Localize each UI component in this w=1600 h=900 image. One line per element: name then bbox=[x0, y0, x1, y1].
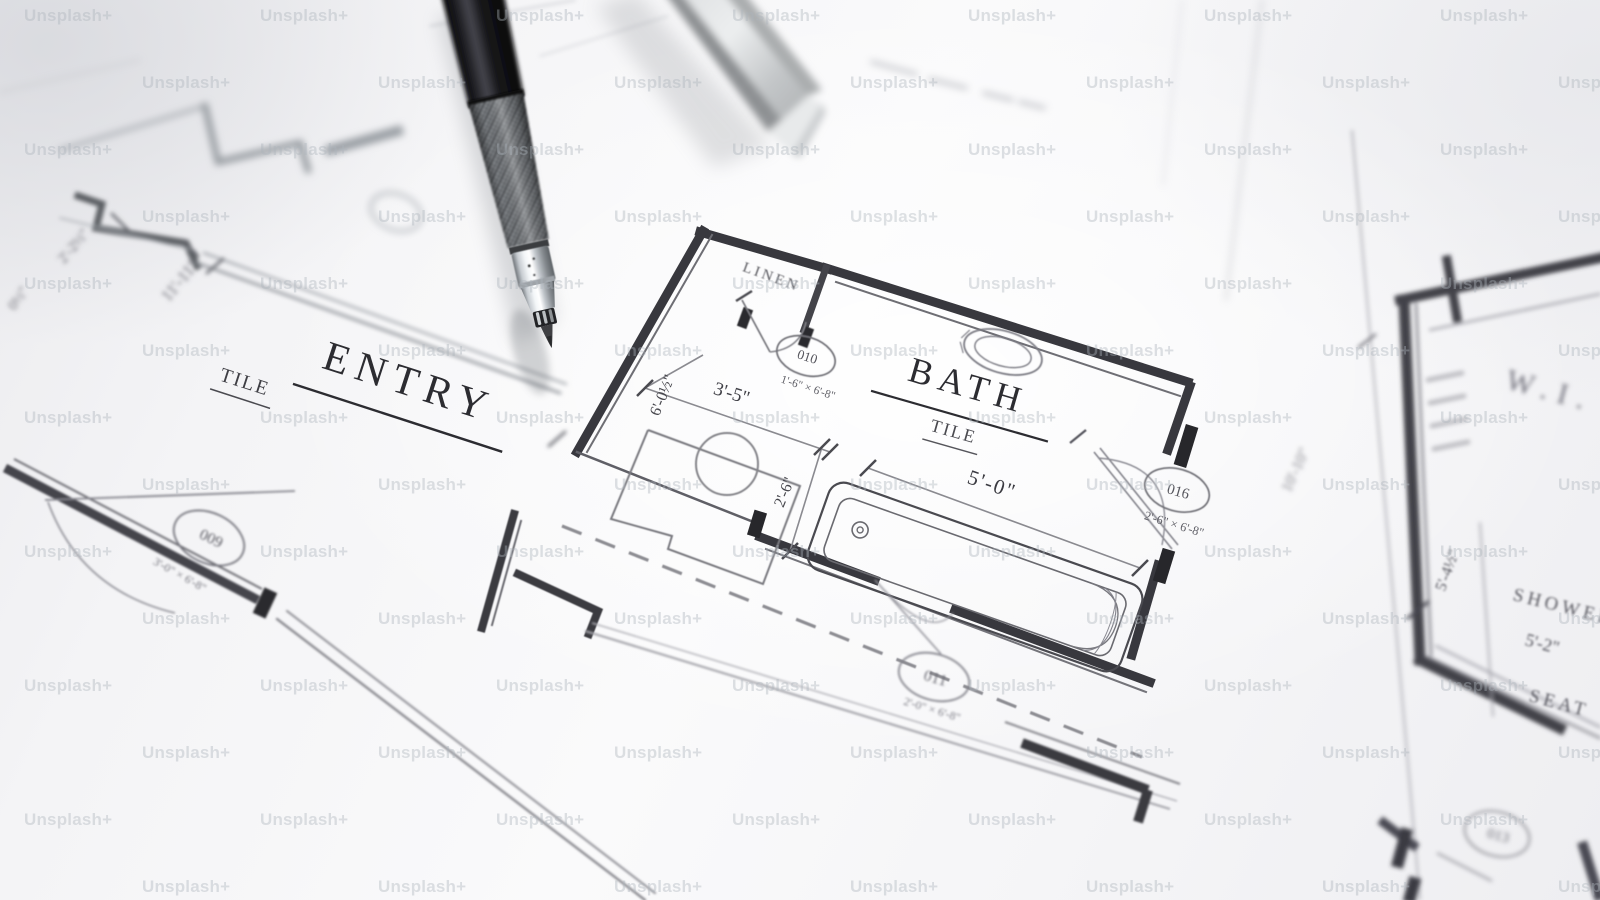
shower-label: SHOWER bbox=[1511, 584, 1600, 630]
door-011 bbox=[875, 580, 975, 709]
dim-vanity-depth: 6'-0½" bbox=[647, 372, 679, 418]
entry-finish-label: TILE bbox=[217, 364, 273, 401]
door-tag-010: 010 bbox=[795, 346, 819, 367]
walkin-label: W.I. bbox=[1502, 363, 1598, 418]
dim-tub-length: 5'-0" bbox=[965, 465, 1020, 504]
linen-label: LINEN bbox=[740, 259, 802, 295]
dim-edge-partial: 0½" bbox=[5, 284, 32, 314]
door-tag-016: 016 bbox=[1165, 481, 1192, 503]
right-room-walls bbox=[1400, 258, 1600, 738]
floor-plan-drawing: 2'-2½" 11'-11" 0½" 009 3'-0" × 6'-8" ENT… bbox=[0, 0, 1600, 900]
entry-label: ENTRY bbox=[317, 333, 500, 432]
door-tag-009: 009 bbox=[196, 526, 225, 552]
dim-hall-text: 11'-11" bbox=[157, 256, 203, 305]
bath-walls bbox=[577, 231, 1198, 692]
dim-jog: 2'-2½" bbox=[55, 226, 93, 267]
faint-pencil-note bbox=[872, 62, 1044, 108]
room-bath: BATH TILE bbox=[871, 341, 1062, 455]
bath-label: BATH bbox=[904, 349, 1032, 421]
dim-shower-depth: 5'-4½" bbox=[1432, 547, 1463, 593]
door-009 bbox=[5, 459, 295, 619]
room-entry: ENTRY TILE bbox=[210, 327, 521, 452]
door-size-010: 1'-6" × 6'-8" bbox=[779, 374, 836, 403]
dim-jog-text: 2'-2½" bbox=[55, 226, 93, 267]
dim-vanity-width: 3'-5" bbox=[711, 378, 752, 409]
tub-dimension: 5'-0" bbox=[860, 460, 1148, 576]
bottom-walls bbox=[1005, 722, 1180, 822]
dim-edge-partial-text: 0½" bbox=[5, 284, 32, 314]
blueprint-photo: 2'-2½" 11'-11" 0½" 009 3'-0" × 6'-8" ENT… bbox=[0, 0, 1600, 900]
right-room-notes bbox=[1428, 373, 1468, 449]
door-tag-011: 011 bbox=[922, 667, 949, 690]
closet-dimension: 10'-10" bbox=[1278, 130, 1420, 900]
dim-hall: 11'-11" bbox=[157, 256, 203, 305]
door-tag-013: 013 bbox=[1485, 825, 1511, 846]
hall-wall-lines bbox=[277, 611, 655, 900]
dim-shower-width: 5'-2" bbox=[1523, 630, 1562, 658]
door-010 bbox=[736, 291, 840, 383]
dim-tub-width: 2'-6" bbox=[771, 475, 798, 510]
vanity-sink bbox=[611, 430, 800, 584]
door-size-016: 2'-6" × 6'-8" bbox=[1143, 509, 1206, 540]
dim-closet-length: 10'-10" bbox=[1278, 445, 1313, 495]
